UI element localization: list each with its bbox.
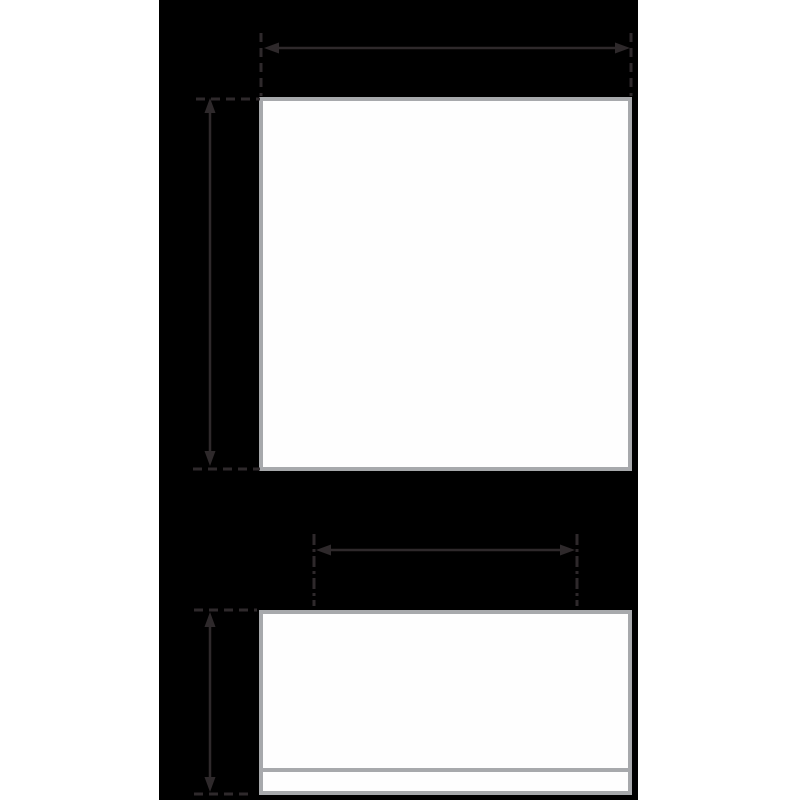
base-panel [259, 610, 632, 795]
diagram-page [0, 0, 800, 800]
base-panel-bottom-strip [263, 772, 628, 791]
artwork-panel [259, 97, 632, 471]
base-panel-face [263, 614, 628, 768]
